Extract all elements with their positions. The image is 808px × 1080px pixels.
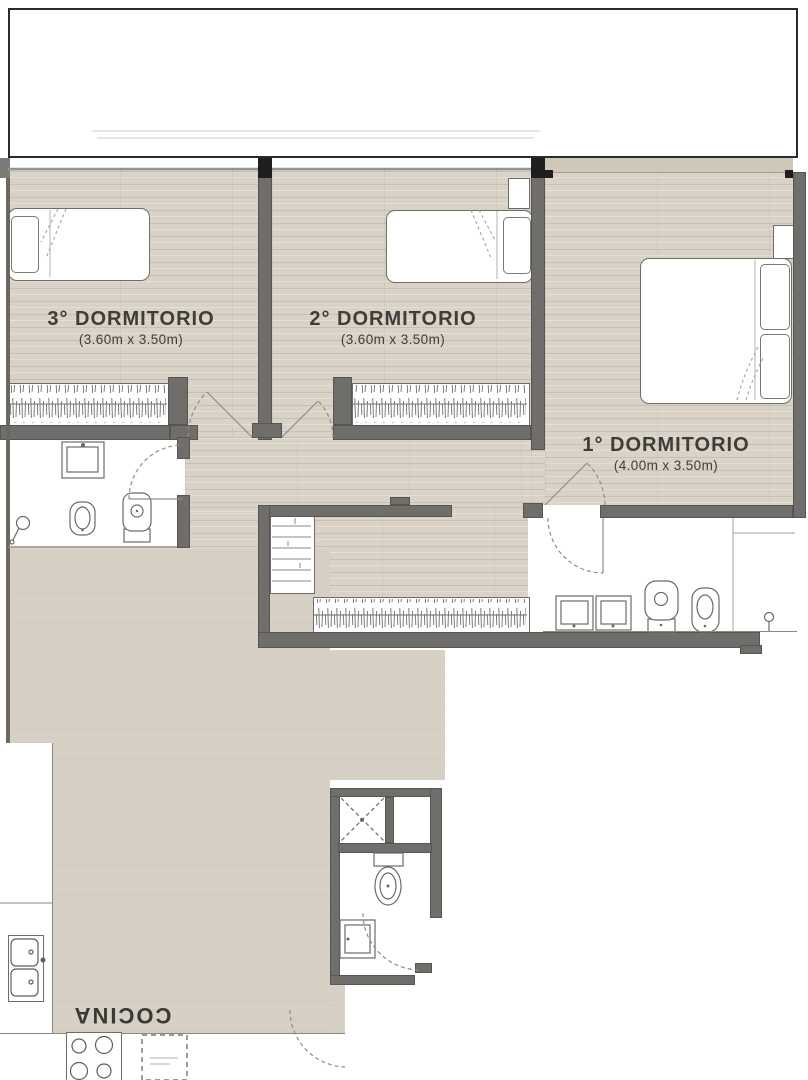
kitchen-sink-counter [8, 935, 44, 1002]
wall-bathroom-main-top [600, 505, 793, 518]
pillow2-bedroom1 [760, 334, 790, 399]
balcony [8, 8, 798, 158]
pillow-bedroom3 [11, 216, 39, 273]
closet-shelves [270, 515, 315, 594]
bedroom2-label: 2° DORMITORIO (3.60m x 3.50m) [284, 308, 502, 347]
bedroom3-name: 3° DORMITORIO [22, 308, 240, 331]
wardrobe-bedroom3 [8, 383, 170, 427]
bathroom-left [8, 440, 177, 548]
service-recess [0, 743, 53, 1080]
wall-closet-top [258, 505, 452, 517]
bedroom2-dimensions: (3.60m x 3.50m) [284, 332, 502, 347]
wall-closet-top-bump [390, 497, 410, 505]
stove-counter [66, 1032, 122, 1080]
wall-bedroom2-door-jamb [333, 377, 352, 425]
bedroom1-door-passage-floor [531, 450, 545, 505]
pillow1-bedroom1 [760, 264, 790, 330]
living-area-floor [8, 548, 330, 1033]
hallway-wardrobe [313, 597, 530, 634]
wall-bedroom2-bottom [333, 425, 531, 440]
wall-outer-left [6, 158, 10, 743]
wall-bathroom-left-top [0, 425, 170, 440]
wall-bedroom3-bedroom2 [258, 158, 272, 440]
pillow-bedroom2 [503, 217, 531, 274]
kitchen-label: COCINA [52, 1002, 192, 1028]
living-area-floor-right [330, 650, 445, 780]
wall-accent-2 [531, 158, 545, 178]
wall-toilette-door-jamb [415, 963, 432, 973]
wall-corner-top-left [0, 158, 10, 178]
hallway-floor [185, 437, 531, 507]
wall-below-shower [338, 843, 432, 853]
sill-tick-left [545, 170, 553, 178]
wall-bedroom2-bedroom1 [531, 158, 545, 450]
floor-plan: 3° DORMITORIO (3.60m x 3.50m) 2° DORMITO… [0, 0, 808, 1080]
bedroom1-window-sill [545, 158, 793, 173]
wall-toilette-top [330, 788, 442, 797]
wall-outer-right [793, 172, 806, 518]
kitchen-counter-strip [0, 1033, 345, 1080]
wall-closet-left [258, 505, 270, 645]
hallway-passage-floor [185, 507, 258, 548]
bedroom1-name: 1° DORMITORIO [557, 434, 775, 457]
wall-bathroom-left-right-a [177, 437, 190, 459]
wall-bedroom3-bedroom2-foot [252, 423, 282, 438]
kitchen-floor-strip [330, 985, 345, 1033]
bedroom3-dimensions: (3.60m x 3.50m) [22, 332, 240, 347]
wall-toilette-left [330, 788, 340, 985]
wall-bedroom3-door-jamb [168, 377, 188, 425]
wall-accent-1 [258, 158, 272, 178]
wardrobe-bedroom2 [352, 383, 530, 427]
bedroom3-label: 3° DORMITORIO (3.60m x 3.50m) [22, 308, 240, 347]
wall-bathroom-main-jamb [523, 503, 543, 518]
wall-bottom-step [740, 645, 762, 654]
sill-tick-right [785, 170, 793, 178]
bathroom-main [543, 518, 797, 632]
wall-bathroom-left-right-b [177, 495, 190, 548]
wall-toilette-bottom [330, 975, 415, 985]
nightstand-bedroom2 [508, 178, 530, 209]
bedroom2-name: 2° DORMITORIO [284, 308, 502, 331]
wall-toilette-right [430, 788, 442, 918]
wall-shower-divider [385, 797, 394, 843]
bedroom1-dimensions: (4.00m x 3.50m) [557, 458, 775, 473]
wall-bottom-long [258, 632, 760, 648]
bedroom1-label: 1° DORMITORIO (4.00m x 3.50m) [557, 434, 775, 473]
